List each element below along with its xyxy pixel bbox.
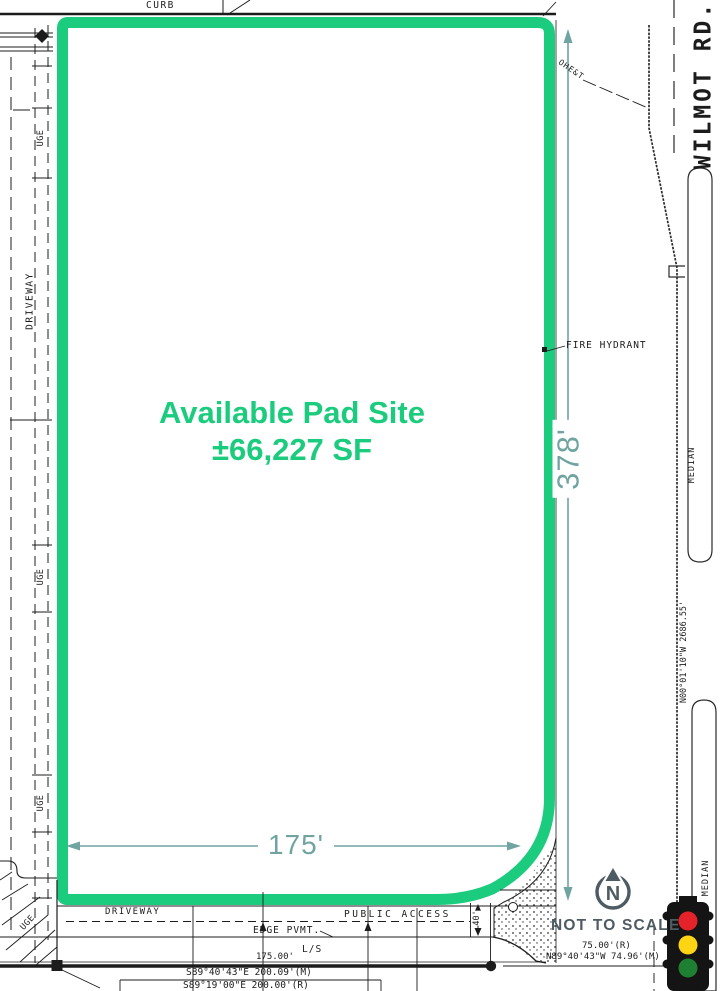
median-lower-label: MEDIAN bbox=[702, 860, 711, 897]
not-to-scale-label: NOT TO SCALE bbox=[551, 918, 681, 934]
traffic-signal-icon bbox=[663, 896, 714, 991]
frontage-length-label: 175.00' bbox=[256, 953, 294, 962]
corner-bearing-measured: N89°40'43"W 74.96'(M) bbox=[546, 953, 660, 962]
south-bearing-record: S89°19'00"E 200.00'(R) bbox=[183, 981, 309, 991]
driveway-left-label: DRIVEWAY bbox=[25, 272, 35, 330]
north-arrow-icon: N bbox=[597, 864, 629, 908]
leader-lines bbox=[542, 80, 648, 352]
utility-circle-marker bbox=[509, 903, 518, 912]
utility-diamond-marker bbox=[35, 29, 49, 43]
curb-label: CURB bbox=[146, 1, 175, 11]
public-access-label: PUBLIC ACCESS bbox=[344, 910, 451, 920]
median-island-upper bbox=[688, 168, 712, 562]
corner-square-marker bbox=[52, 960, 63, 971]
site-plan: N CURB DRIVEWAY UGE UGE UGE UGE OHE&T WI… bbox=[0, 0, 727, 991]
pad-title: Available Pad Site bbox=[159, 397, 425, 428]
north-arrow-letter: N bbox=[606, 883, 620, 905]
uge-label-1: UGE bbox=[37, 130, 46, 147]
landscape-label: L/S bbox=[302, 945, 322, 955]
width-dimension-label: 175' bbox=[258, 831, 334, 859]
corner-dot-marker bbox=[486, 961, 496, 971]
driveway-uge-linework bbox=[10, 25, 52, 963]
edge-pvmt-label: EDGE PVMT. bbox=[253, 926, 320, 936]
uge-label-3: UGE bbox=[37, 795, 46, 812]
signal-green-light bbox=[679, 959, 698, 978]
street-name-label: WILMOT RD. bbox=[693, 1, 716, 169]
pad-area: ±66,227 SF bbox=[212, 434, 372, 465]
fire-hydrant-label: FIRE HYDRANT bbox=[566, 341, 647, 351]
driveway-bottom-label: DRIVEWAY bbox=[105, 908, 160, 917]
signal-red-light bbox=[679, 912, 698, 931]
corner-bearing-record: 75.00'(R) bbox=[582, 942, 631, 951]
south-bearing-measured: S89°40'43"E 200.09'(M) bbox=[186, 968, 312, 978]
fire-hydrant-marker bbox=[542, 347, 547, 352]
median-upper-label: MEDIAN bbox=[688, 447, 697, 484]
survey-linework: N bbox=[0, 0, 727, 991]
centerline-bearing-label: N00°01'10"W 2686.55' bbox=[680, 601, 689, 703]
signal-yellow-light bbox=[679, 936, 698, 955]
uge-label-2: UGE bbox=[37, 569, 46, 586]
height-dimension-label: 378' bbox=[553, 420, 584, 498]
access-width-label: 40' bbox=[473, 910, 482, 925]
